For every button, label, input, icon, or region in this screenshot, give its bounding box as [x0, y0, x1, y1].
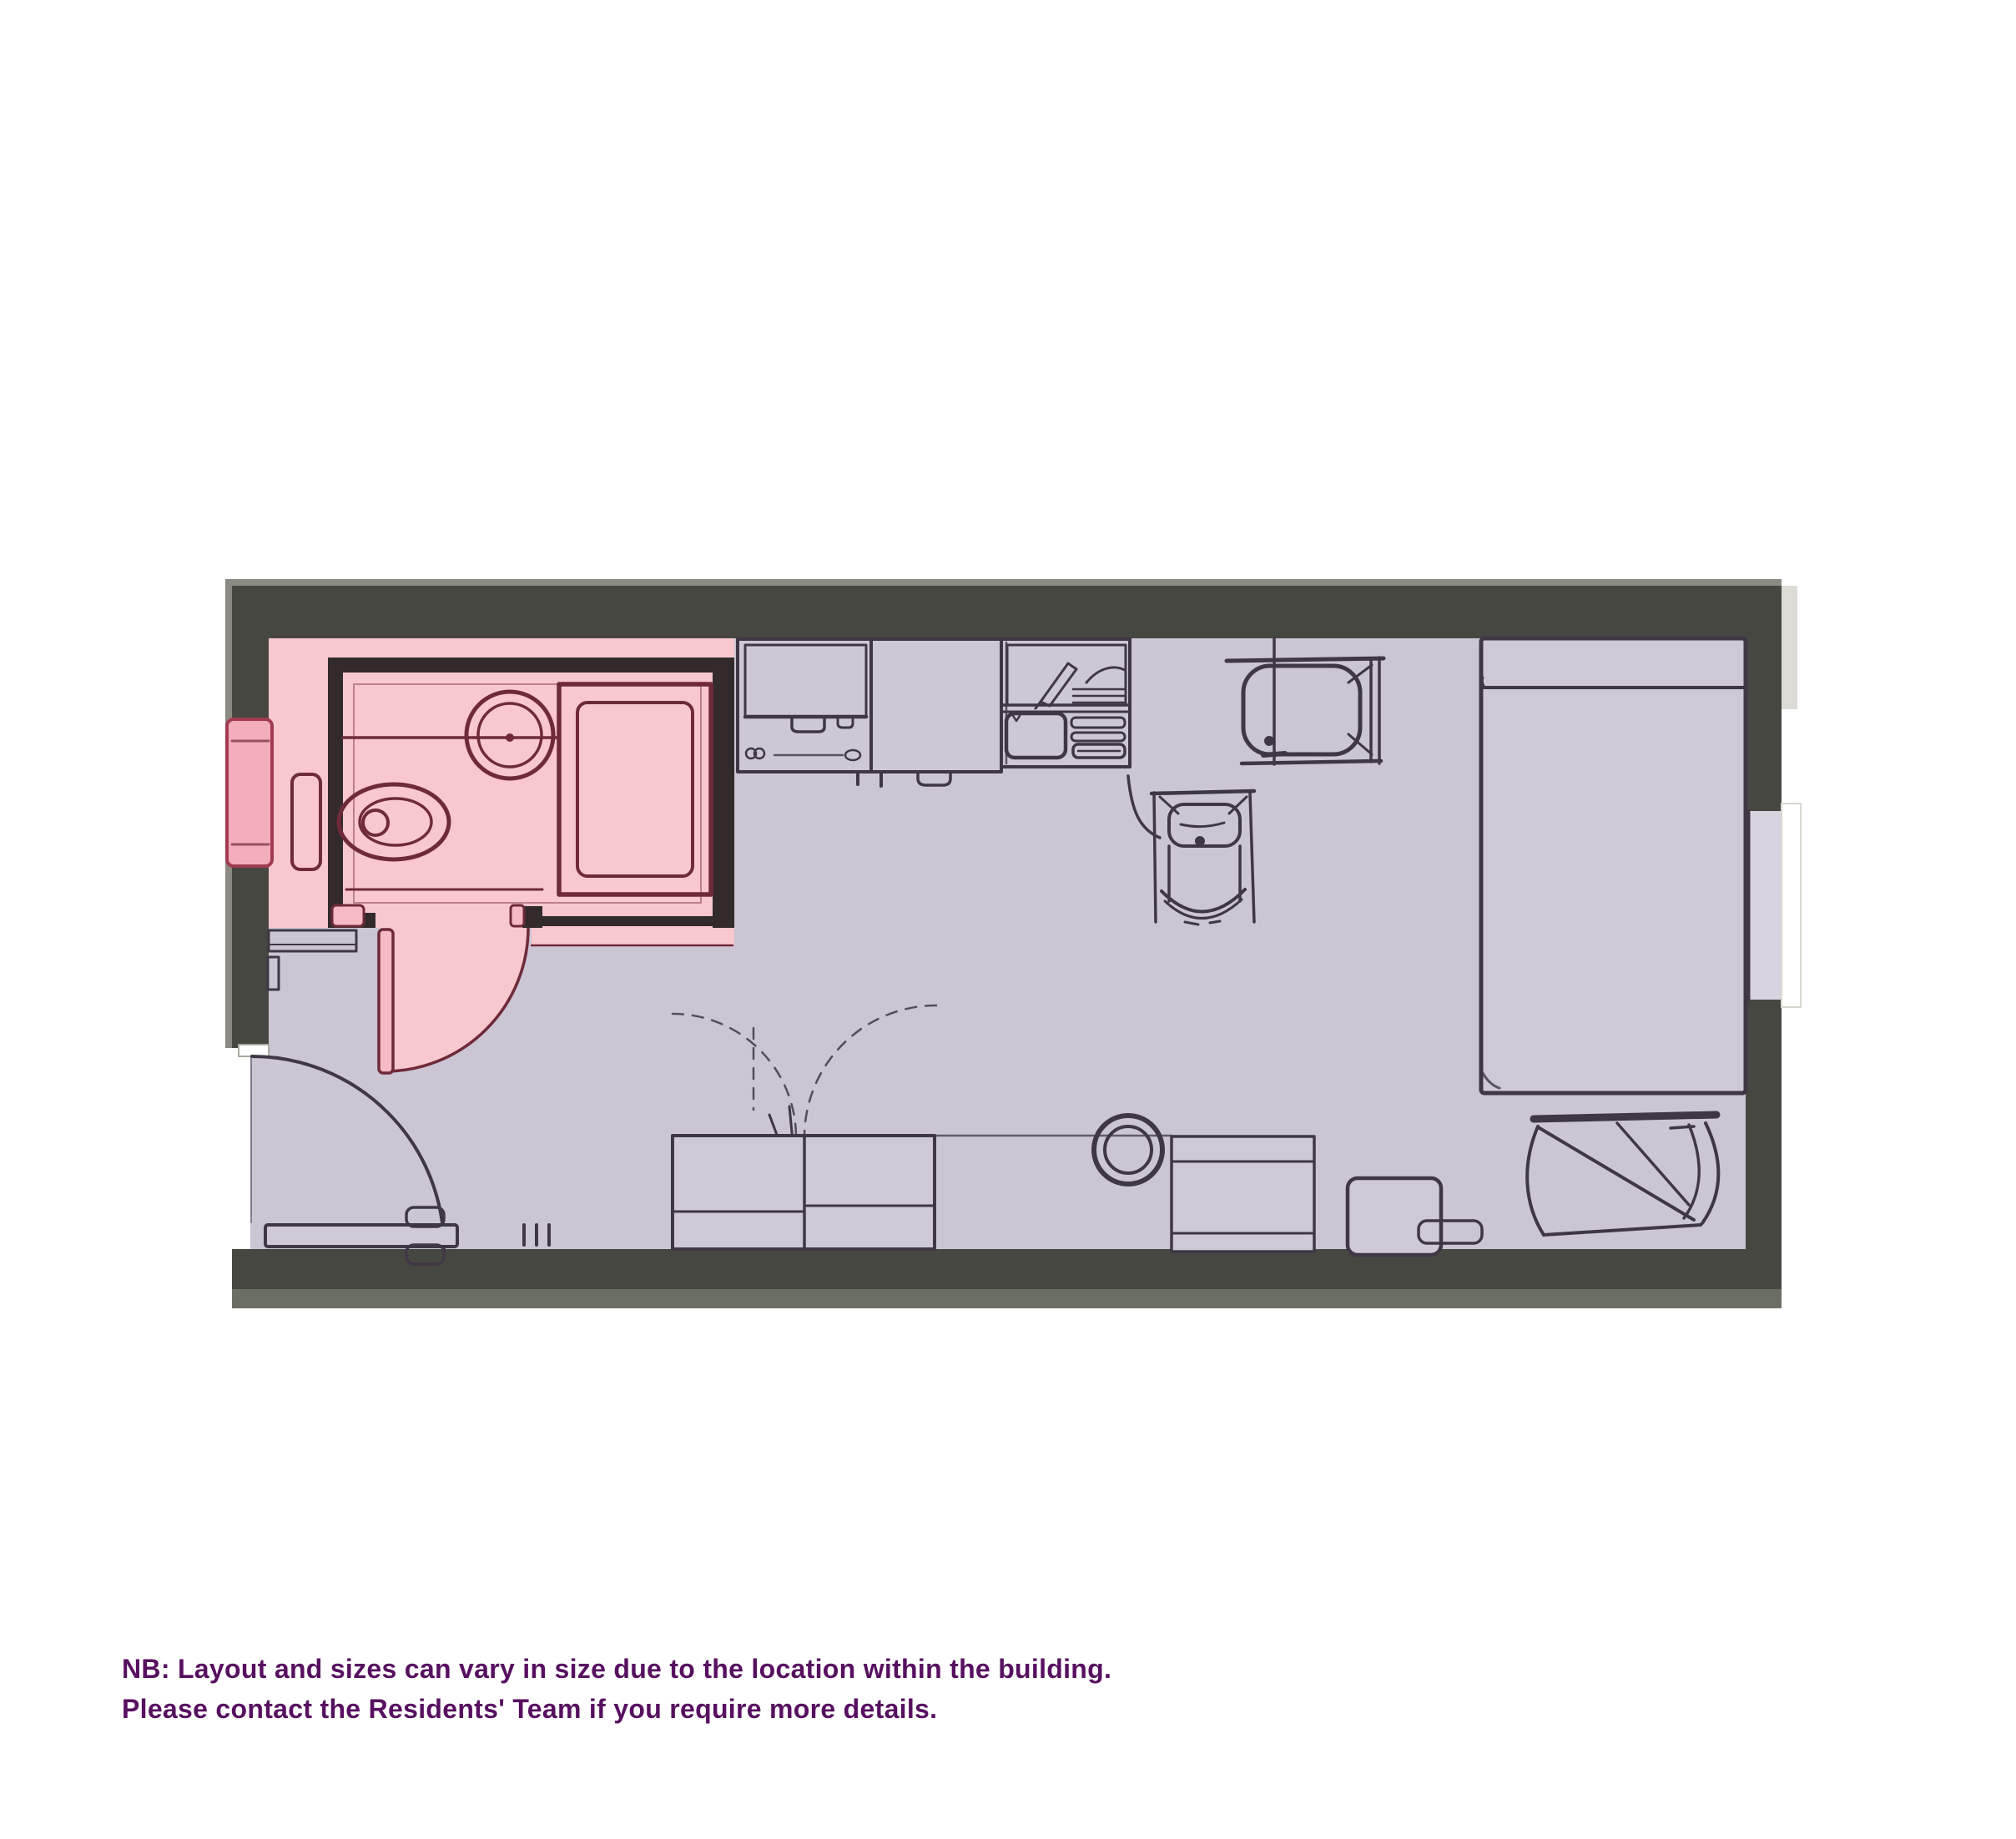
wall-top	[232, 586, 1782, 638]
chair2-frame-left	[1154, 793, 1156, 922]
wall-bottom	[232, 1249, 1782, 1289]
plan-disclaimer: NB: Layout and sizes can vary in size du…	[122, 1649, 1290, 1729]
wall-left-lower	[232, 864, 269, 1048]
entrance-door-jamb	[239, 1045, 269, 1056]
floor-plan-drawing	[0, 0, 2016, 1839]
chair2-scribble	[1210, 921, 1220, 923]
doorway-floor	[250, 1048, 269, 1249]
disclaimer-line-1: NB: Layout and sizes can vary in size du…	[122, 1649, 1290, 1689]
wall-left-upper	[232, 586, 269, 721]
chair-dot	[1264, 736, 1274, 746]
bedroom-window-sill	[1746, 811, 1782, 1000]
washbasin-tap-dot	[506, 733, 514, 742]
kitchen-unit-mid	[871, 639, 1001, 772]
table-top-edge	[1227, 658, 1383, 661]
entrance-door-leaf	[265, 1225, 457, 1247]
page: NB: Layout and sizes can vary in size du…	[0, 0, 2016, 1839]
chair2-dot	[1195, 836, 1205, 846]
bathroom-door-post	[522, 906, 542, 928]
armchair-top-bar	[1534, 1115, 1716, 1119]
wall-right-upper	[1746, 586, 1782, 811]
floor-plan	[0, 0, 2016, 1839]
bed	[1481, 638, 1746, 1093]
bathroom-door-jamb-cap-left	[332, 905, 364, 926]
wall-right-lower	[1746, 1000, 1782, 1289]
bathroom-wall-right	[713, 658, 734, 928]
bathroom-door-leaf	[379, 930, 393, 1073]
chair2-top-bar	[1152, 791, 1254, 794]
disclaimer-line-2: Please contact the Residents' Team if yo…	[122, 1689, 1290, 1729]
kitchen-unit-left	[738, 639, 871, 772]
bathroom-wall-left	[328, 658, 343, 928]
armchair-tick	[1671, 1126, 1694, 1128]
bathroom-door-jamb-cap-right	[511, 905, 524, 926]
table-bottom-edge	[1242, 761, 1381, 763]
chair-shadow-dash	[1263, 753, 1285, 755]
bathroom-wall-bottom-right	[542, 916, 734, 926]
bathroom-floor-strip	[532, 925, 734, 945]
wall-pale-right	[1782, 586, 1797, 709]
bathroom-wall-top	[328, 658, 734, 673]
bedroom-window-gap	[1782, 804, 1801, 1007]
